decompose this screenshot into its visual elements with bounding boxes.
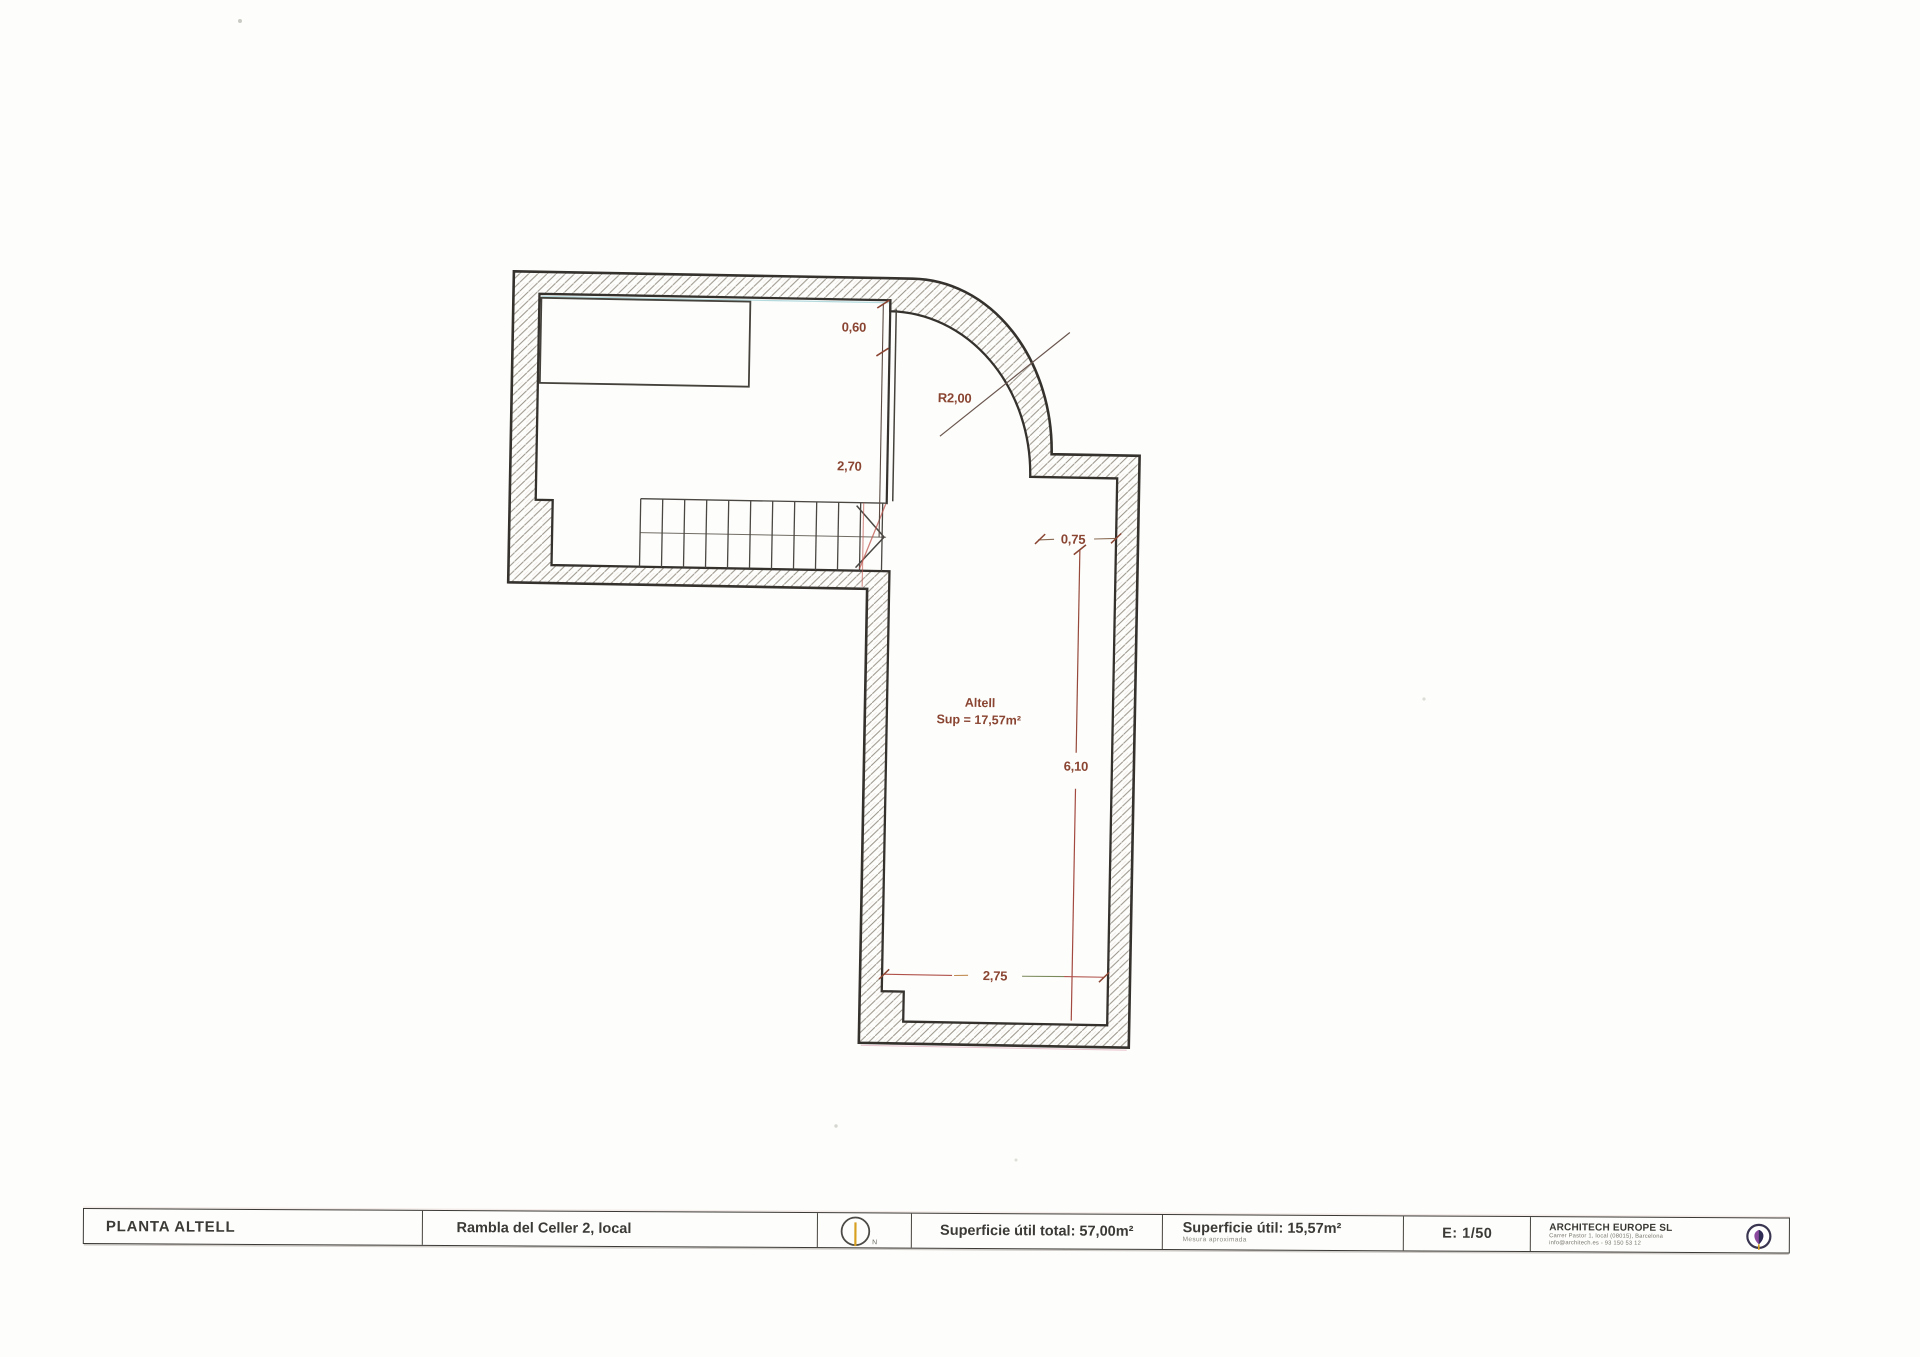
useful-area-text: Superficie útil: 15,57m² — [1183, 1221, 1342, 1237]
plan-drawing: 0,60 2,70 R2,00 0,75 6,10 — [500, 271, 1143, 1050]
railing-line-inner — [893, 309, 897, 501]
dimension-0-75: 0,75 — [1035, 531, 1121, 548]
title-block-cell-company: ARCHITECH EUROPE SL Carrer Pastor 1, loc… — [1531, 1217, 1789, 1252]
dimension-6-10: 6,10 — [1059, 545, 1092, 1021]
dimension-label-6-10: 6,10 — [1064, 758, 1089, 773]
dimension-label-r2-00: R2,00 — [938, 390, 972, 406]
dimension-label-0-75: 0,75 — [1061, 531, 1086, 546]
project-address: Rambla del Celler 2, local — [456, 1220, 631, 1237]
scan-speck — [834, 1124, 837, 1127]
scan-speck — [1422, 697, 1425, 700]
north-indicator: N — [818, 1213, 911, 1248]
company-name: ARCHITECH EUROPE SL — [1549, 1222, 1672, 1234]
title-block-cell-address: Rambla del Celler 2, local — [422, 1211, 818, 1247]
dimension-label-2-75: 2,75 — [983, 968, 1008, 983]
useful-area-note: Mesura aproximada — [1183, 1236, 1247, 1243]
wall-outline-outer — [500, 271, 1143, 1047]
title-block-cell-useful-area: Superficie útil: 15,57m² Mesura aproxima… — [1163, 1215, 1405, 1250]
railing-line-outer — [887, 300, 891, 504]
scan-speck — [238, 19, 242, 23]
stairs — [639, 499, 886, 571]
dimension-label-2-70: 2,70 — [837, 458, 862, 473]
plan-title: PLANTA ALTELL — [106, 1218, 236, 1236]
scan-speck — [1015, 1159, 1018, 1162]
company-logo-icon — [1745, 1222, 1773, 1252]
void-opening — [540, 298, 751, 387]
room-name: Altell — [965, 696, 996, 711]
dimension-2-75: 2,75 — [879, 966, 1109, 985]
north-label: N — [872, 1239, 877, 1246]
dimension-label-0-60: 0,60 — [842, 319, 867, 334]
company-contact: info@architech.es - 93 150 53 12 — [1549, 1240, 1641, 1247]
total-area-text: Superficie útil total: 57,00m² — [940, 1223, 1133, 1240]
room-label: Altell Sup = 17,57m² — [936, 695, 1021, 728]
title-block-cell-plan-name: PLANTA ALTELL — [84, 1209, 423, 1245]
wall-hatch — [500, 271, 1143, 1047]
scale-text: E: 1/50 — [1442, 1226, 1492, 1242]
dimension-left-vertical: 0,60 2,70 — [836, 299, 890, 537]
floor-plan: 0,60 2,70 R2,00 0,75 6,10 — [0, 0, 1920, 1357]
title-block-cell-scale: E: 1/50 — [1404, 1216, 1531, 1251]
title-block-cell-total-area: Superficie útil total: 57,00m² — [912, 1214, 1163, 1249]
scanned-floor-plan-page: { "plan": { "room": { "name": "Altell", … — [0, 0, 1920, 1357]
room-area: Sup = 17,57m² — [936, 712, 1021, 728]
title-block-cell-north: N — [818, 1213, 912, 1248]
sheet: 0,60 2,70 R2,00 0,75 6,10 — [0, 0, 1920, 1357]
